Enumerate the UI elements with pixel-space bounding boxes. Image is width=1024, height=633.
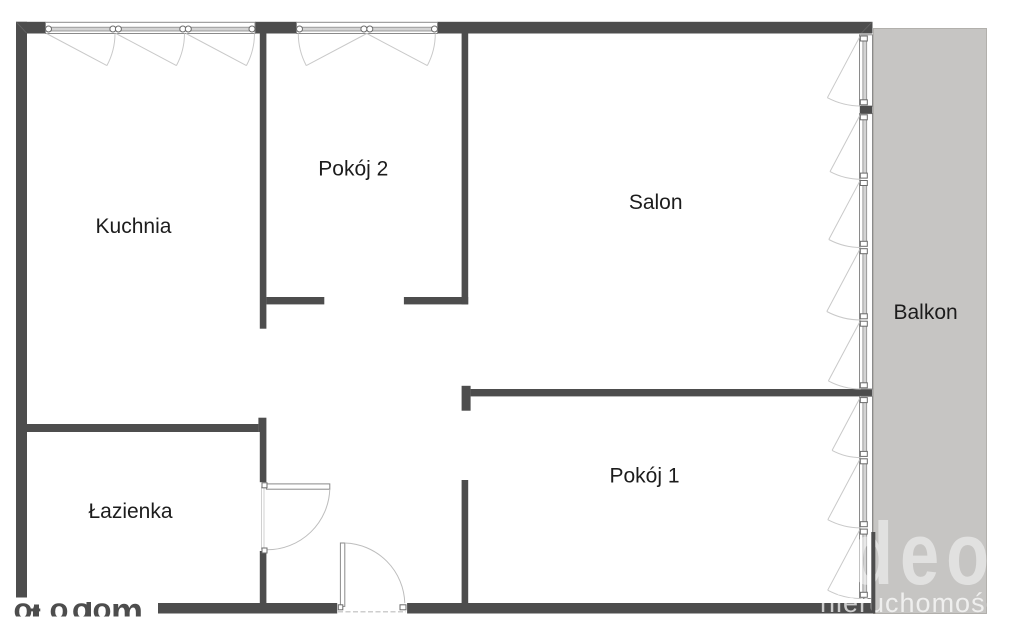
svg-text:Balkon: Balkon: [893, 301, 957, 324]
svg-text:Łazienka: Łazienka: [88, 500, 172, 523]
svg-text:Kuchnia: Kuchnia: [96, 215, 172, 238]
svg-text:Pokój 2: Pokój 2: [318, 158, 388, 181]
svg-text:nieruchomości: nieruchomości: [820, 588, 1007, 618]
svg-text:Pokój 1: Pokój 1: [609, 465, 679, 488]
svg-text:Salon: Salon: [629, 191, 683, 214]
